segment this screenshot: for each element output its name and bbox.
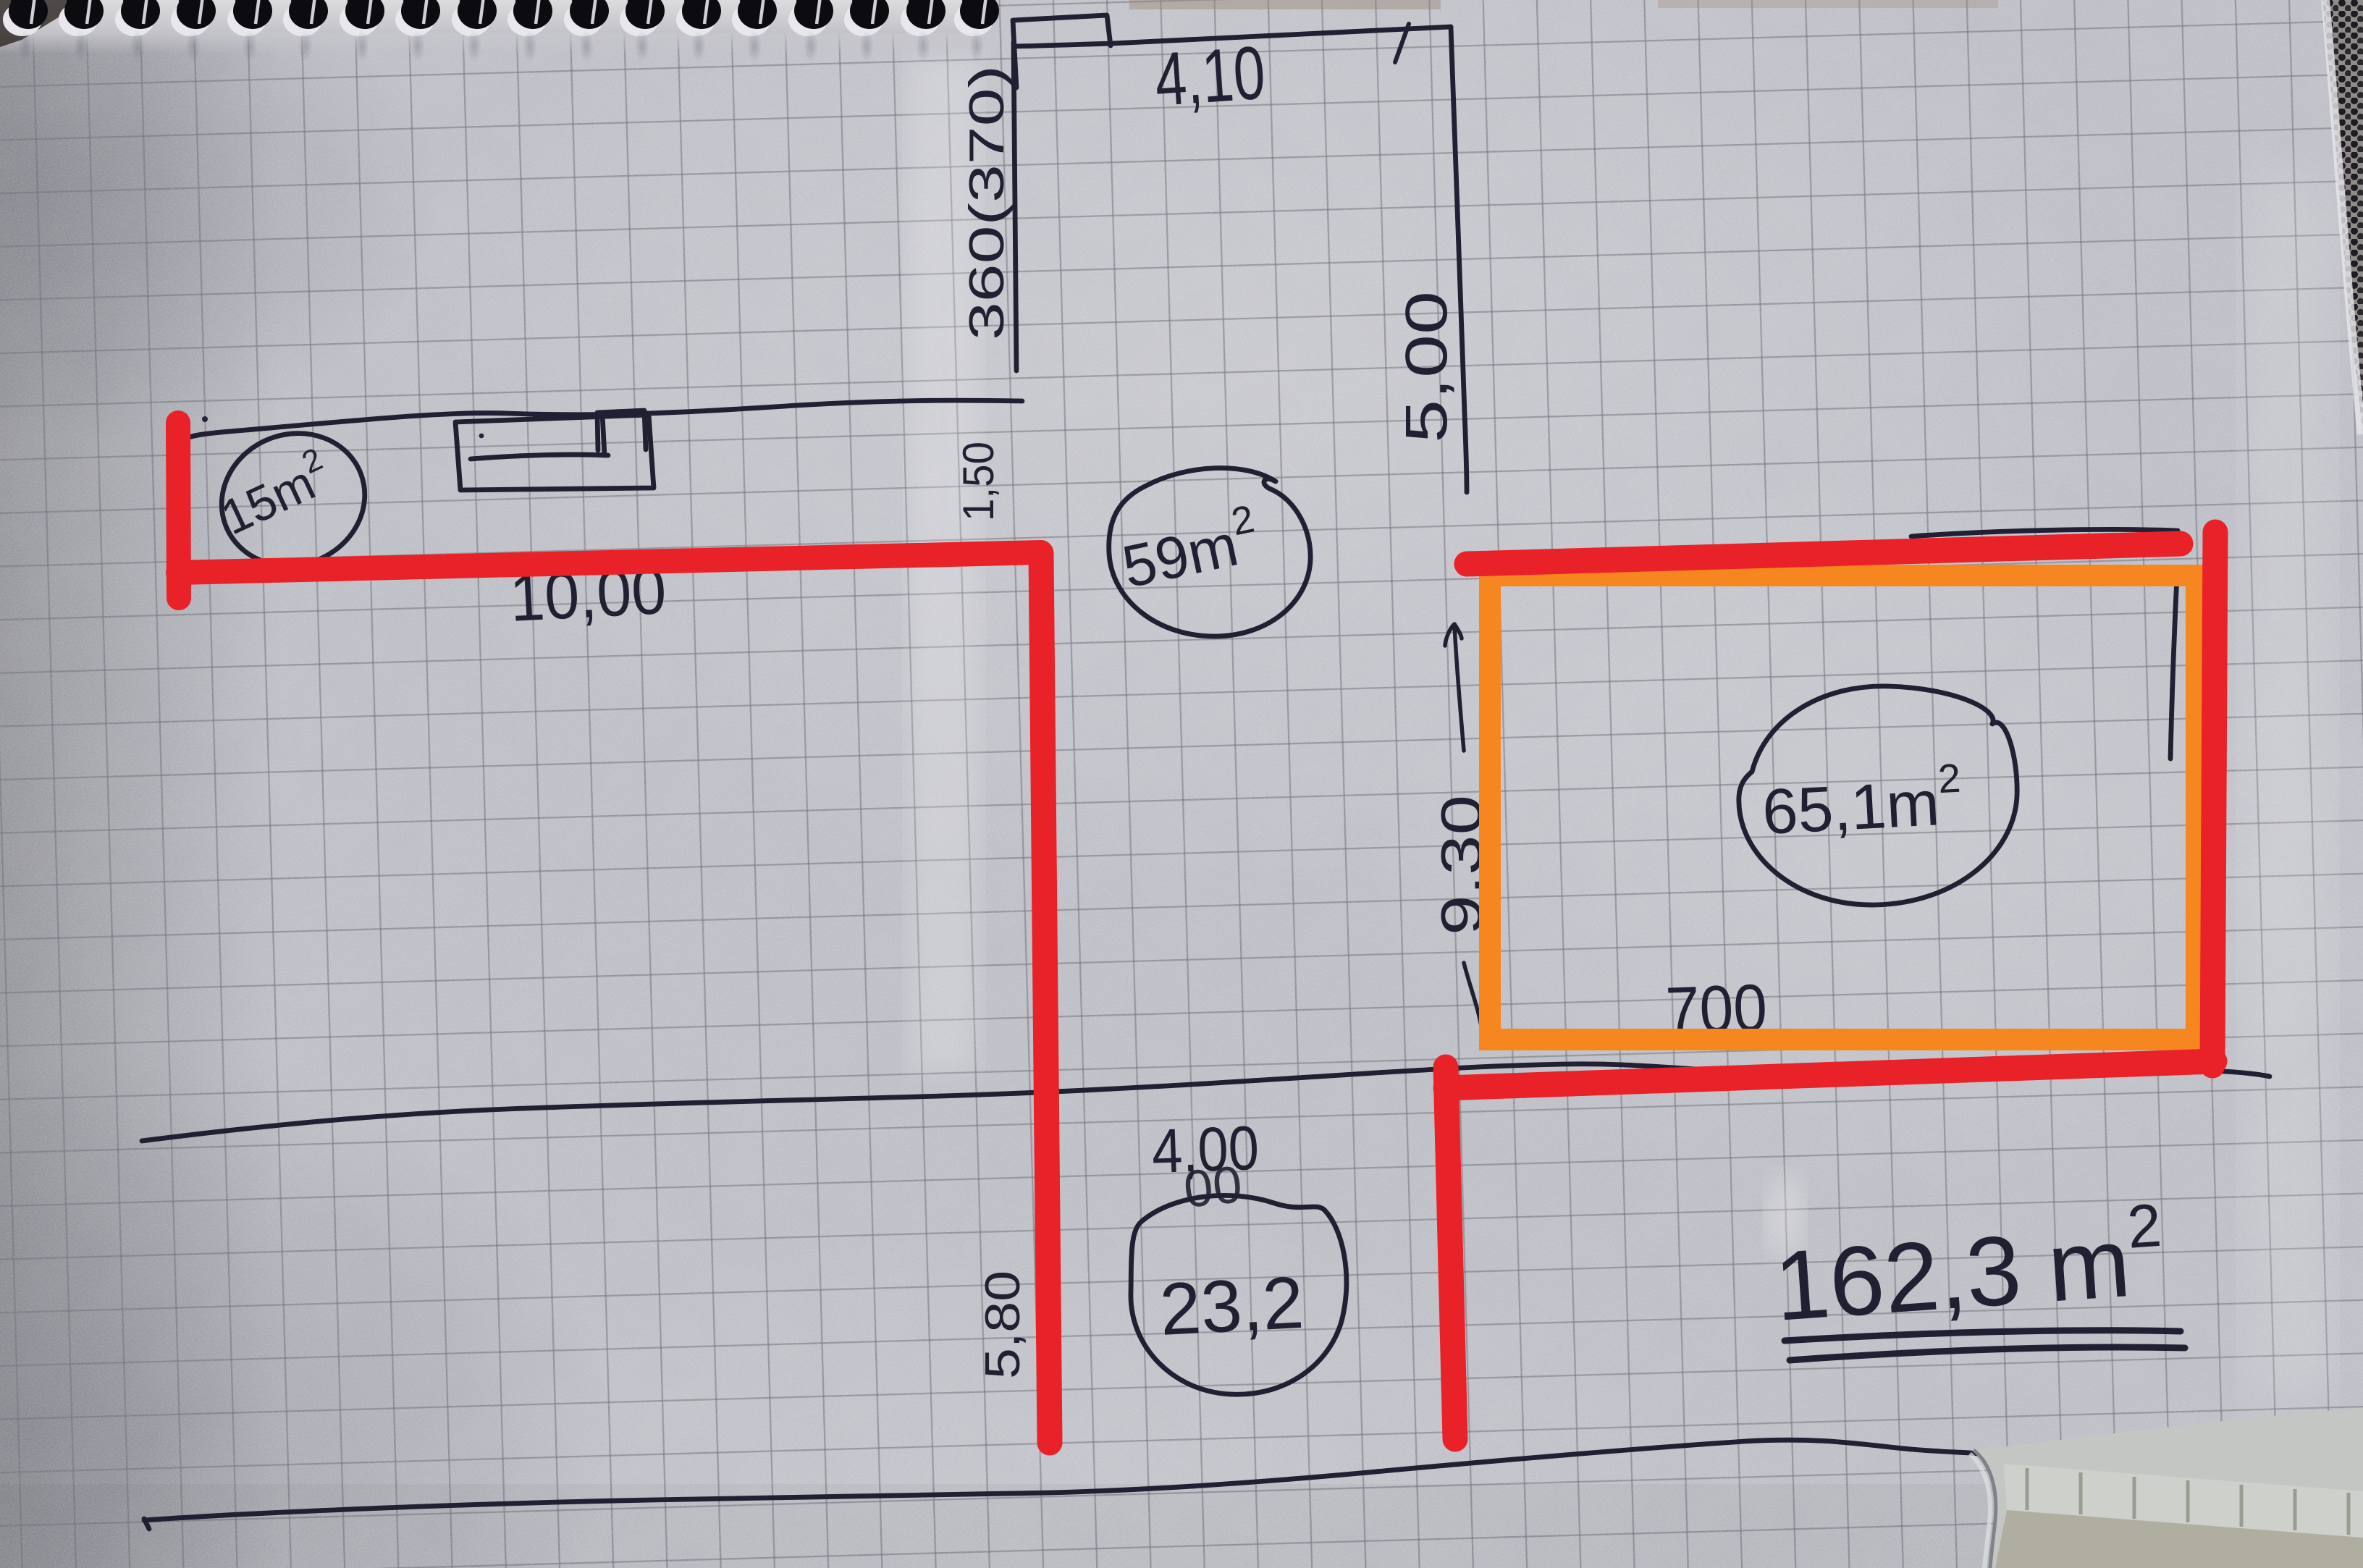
svg-text:23,2: 23,2 xyxy=(1158,1261,1305,1351)
svg-text:4,10: 4,10 xyxy=(1153,31,1268,122)
svg-text:5,80: 5,80 xyxy=(975,1270,1030,1379)
svg-text:360(370): 360(370) xyxy=(959,65,1014,340)
svg-text:1,50: 1,50 xyxy=(954,442,1003,521)
svg-text:00: 00 xyxy=(1181,1155,1244,1219)
svg-text:5,00: 5,00 xyxy=(1394,291,1459,443)
